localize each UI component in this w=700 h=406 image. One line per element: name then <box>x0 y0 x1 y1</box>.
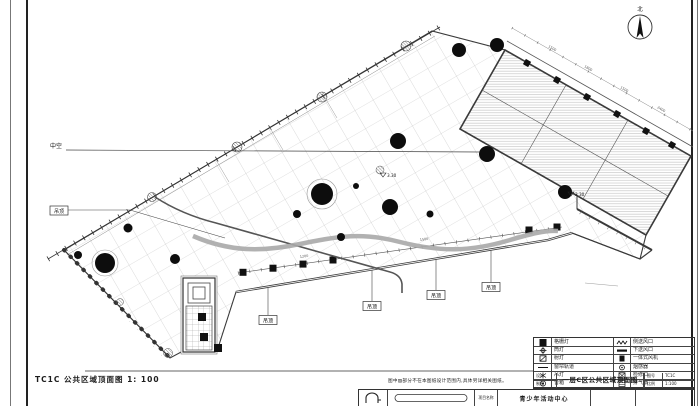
bottom-tag: 吊顶 <box>482 250 500 292</box>
smoke-detector-icon <box>613 364 630 371</box>
legend-label: 一体式风机 <box>630 355 694 362</box>
empty-cell <box>591 390 636 406</box>
bottom-title-band: 项目名称 青少年活动中心 <box>358 389 695 406</box>
curtain-track-icon <box>534 364 551 371</box>
down-supply-vent-icon <box>613 347 630 354</box>
legend-label: 下送风口 <box>630 347 694 354</box>
logo-arc-icon <box>364 392 382 404</box>
scope-note: 图中▨部分不在本图纸设计范围内,具体另详相关图纸。 <box>388 378 507 384</box>
dim-text: 2400 <box>657 105 666 113</box>
legend-label: 侧送风口 <box>630 338 694 346</box>
bottom-tag: 吊顶 <box>427 259 445 300</box>
legend-label: 格栅灯 <box>551 338 613 346</box>
title-block: 设计 制图 一层C区公共区域顶面图 图号 TC1C 比例 1:100 <box>533 373 695 389</box>
level-text: 3.30 <box>575 192 585 197</box>
grille-light-icon <box>534 338 551 346</box>
void-label: 中空 <box>50 142 62 150</box>
tag-text: 吊顶 <box>486 286 496 292</box>
legend-row: 窗帘轨道 烟感器 <box>534 363 694 371</box>
legend-label: 射灯 <box>551 355 613 362</box>
downlight-icon <box>534 347 551 354</box>
tag-text: 吊顶 <box>367 305 377 311</box>
project-label: 项目名称 <box>478 396 493 400</box>
bottom-tag: 吊顶 <box>363 270 381 311</box>
spotlight-icon <box>534 355 551 362</box>
field-value: 1:100 <box>662 381 694 389</box>
role-label: 设计 <box>534 373 556 381</box>
legend-row: 射灯 一体式风机 <box>534 354 694 362</box>
empty-cell <box>636 390 694 406</box>
tag-text: 吊顶 <box>263 319 273 325</box>
north-label: 北 <box>637 5 643 13</box>
project-label-cell: 项目名称 <box>475 390 498 406</box>
legend-label: 烟感器 <box>630 364 694 371</box>
legend-row: 格栅灯 侧送风口 <box>534 338 694 346</box>
firm-logo <box>359 390 388 406</box>
drawing-title: 一层C区公共区域顶面图 <box>556 373 644 388</box>
dim-text: 1800 <box>584 64 593 72</box>
return-air-vent-icon <box>613 338 630 346</box>
field-value: TC1C <box>662 373 694 381</box>
level-text: 3.30 <box>387 173 397 178</box>
tag-text: 吊顶 <box>54 209 64 215</box>
role-label: 制图 <box>534 381 556 389</box>
tag-text: 吊顶 <box>431 294 441 300</box>
stair-elevator-core <box>181 276 222 354</box>
legend-label: 窗帘轨道 <box>551 364 613 371</box>
field-label: 图号 <box>644 373 662 381</box>
north-arrow: 北 <box>628 5 652 39</box>
integrated-fan-icon <box>613 355 630 362</box>
project-name: 青少年活动中心 <box>498 390 591 406</box>
legend-label: 筒灯 <box>551 347 613 354</box>
legend-row: 筒灯 下送风口 <box>534 346 694 354</box>
title-block-fields: 图号 TC1C 比例 1:100 <box>644 373 694 388</box>
firm-name-oval <box>394 393 468 403</box>
drawing-caption: TC1C 公共区域顶面图 1: 100 <box>35 374 160 385</box>
title-block-roles: 设计 制图 <box>534 373 556 388</box>
firm-name-seal <box>388 390 475 406</box>
bottom-tag: 吊顶 <box>259 288 277 325</box>
field-label: 比例 <box>644 381 662 389</box>
drawing-sheet: 1500 1800 1500 2400 <box>0 0 700 406</box>
